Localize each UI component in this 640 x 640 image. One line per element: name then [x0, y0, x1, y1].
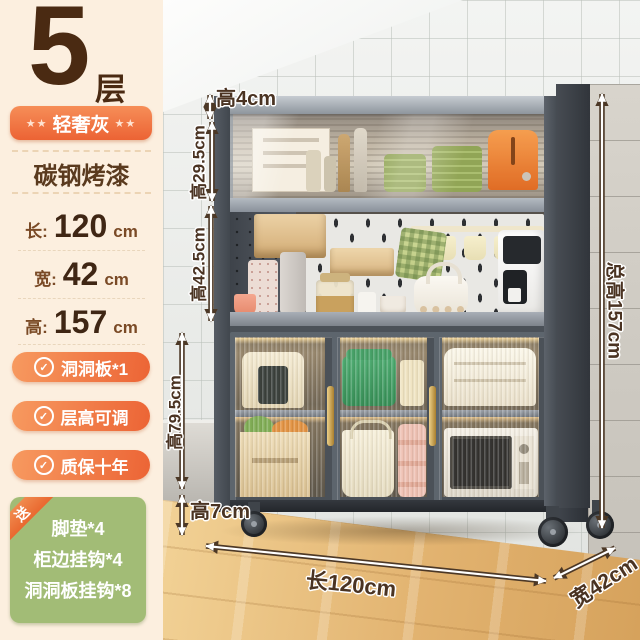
product-image: 高4cm 高29.5cm 高42.5cm 高79.5cm 高7cm 总高157c…	[0, 0, 640, 640]
dimension-arrows	[0, 0, 640, 640]
label-caster-height: 高7cm	[190, 495, 250, 524]
label-lower-height: 高79.5cm	[161, 368, 186, 458]
label-upper-height: 高29.5cm	[185, 118, 210, 208]
label-total-height: 总高157cm	[603, 261, 630, 361]
label-middle-height: 高42.5cm	[185, 220, 210, 310]
label-top-frame-height: 高4cm	[216, 82, 276, 111]
